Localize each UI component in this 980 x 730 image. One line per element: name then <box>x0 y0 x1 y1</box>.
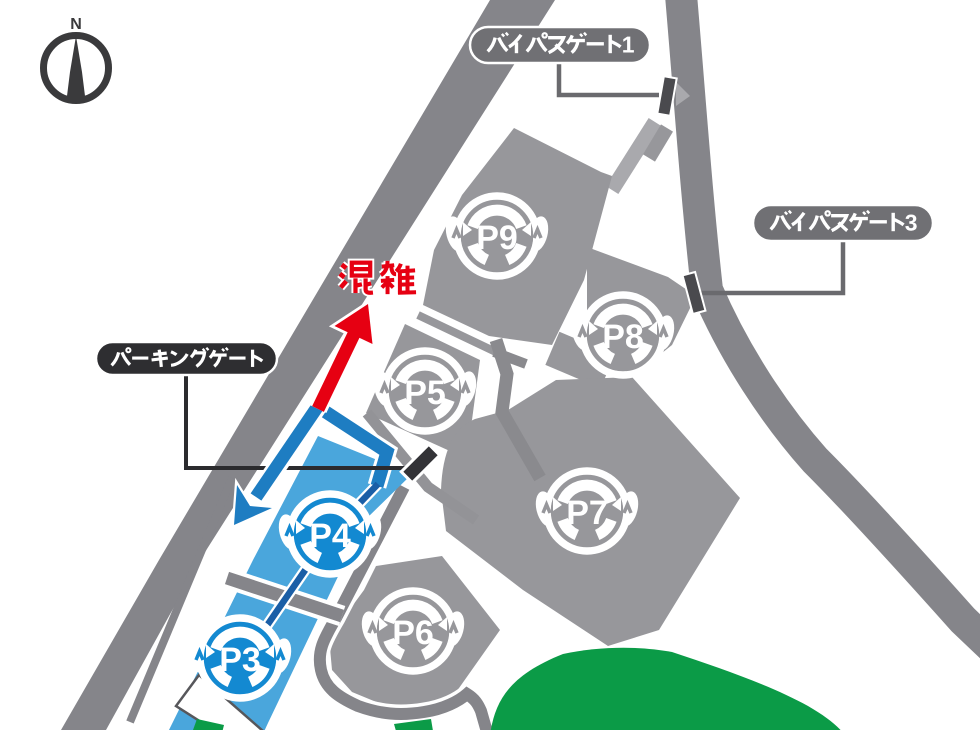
svg-text:P4: P4 <box>309 517 351 555</box>
svg-text:P9: P9 <box>476 219 518 257</box>
svg-text:1: 1 <box>622 33 635 58</box>
svg-text:3: 3 <box>905 211 918 236</box>
svg-text:P5: P5 <box>404 374 446 412</box>
svg-text:P6: P6 <box>392 614 434 652</box>
svg-text:P7: P7 <box>566 494 608 532</box>
svg-text:P3: P3 <box>219 641 261 679</box>
svg-text:N: N <box>70 16 82 33</box>
svg-text:P8: P8 <box>602 318 644 356</box>
